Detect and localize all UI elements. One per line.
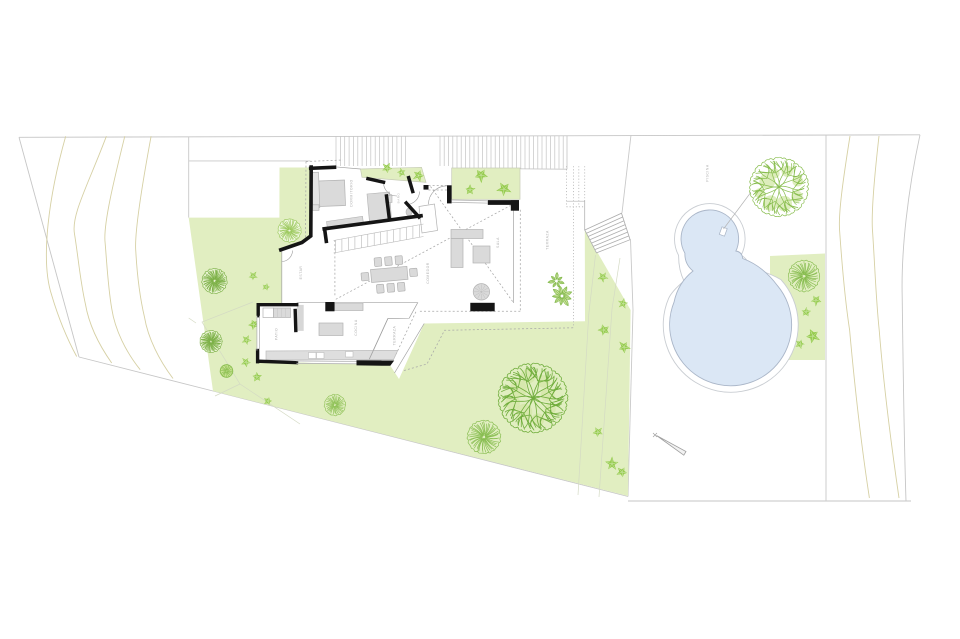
svg-text:ESTAR: ESTAR	[299, 266, 303, 280]
svg-text:BAÑO: BAÑO	[396, 193, 401, 204]
svg-text:TERRAZA: TERRAZA	[546, 230, 550, 250]
svg-text:PATIO: PATIO	[275, 328, 279, 340]
svg-text:PISCINA: PISCINA	[706, 164, 710, 182]
svg-text:SALA: SALA	[496, 237, 500, 248]
svg-text:COCINA: COCINA	[354, 319, 358, 336]
svg-text:COMEDOR: COMEDOR	[426, 262, 430, 284]
svg-text:DORMITORIO: DORMITORIO	[350, 179, 354, 206]
svg-text:TERRAZA: TERRAZA	[393, 325, 397, 345]
